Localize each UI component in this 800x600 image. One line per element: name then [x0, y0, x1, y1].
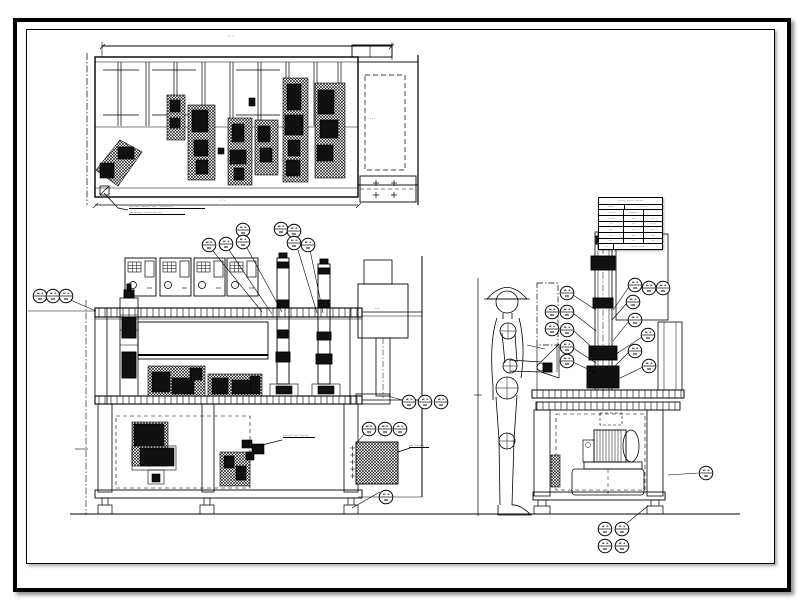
- plan-dim-top-text: -··-: [228, 34, 235, 38]
- plan-machinery: [96, 78, 345, 186]
- plan-view: [87, 42, 418, 210]
- cad-line-art: ··· ···: [0, 0, 800, 600]
- front-stepbox-dots: ···: [375, 306, 380, 312]
- plan-dim-bottom-text: -·-: [220, 198, 226, 202]
- plan-extension-dots: ···: [370, 116, 375, 122]
- balloon-callout: [33, 289, 47, 303]
- side-cabinet: [533, 410, 665, 514]
- vertical-actuators: [276, 253, 332, 384]
- parts-table: —·—· ——·· —·— ——· ·——— ·—— ——— ——· — —· …: [598, 197, 663, 250]
- drawing-sheet: ··· ··· -··- -·- —·— ——·— ·——— ——— ———— …: [0, 0, 800, 600]
- front-panel-note: —·——: [409, 443, 429, 448]
- parts-table-title: —·—· ——·· —·—: [599, 198, 662, 205]
- bench-components: [148, 366, 340, 396]
- front-view: [28, 253, 422, 515]
- right-structure: [350, 256, 422, 497]
- human-figure: [484, 288, 545, 516]
- parts-table-footer: — ·——·——: [599, 244, 662, 249]
- plan-leader-note-line2: ——— ————: [129, 210, 185, 215]
- cabinet-interior: [116, 416, 282, 488]
- front-component-note: ——·—·——: [283, 433, 315, 438]
- left-column: [120, 284, 138, 396]
